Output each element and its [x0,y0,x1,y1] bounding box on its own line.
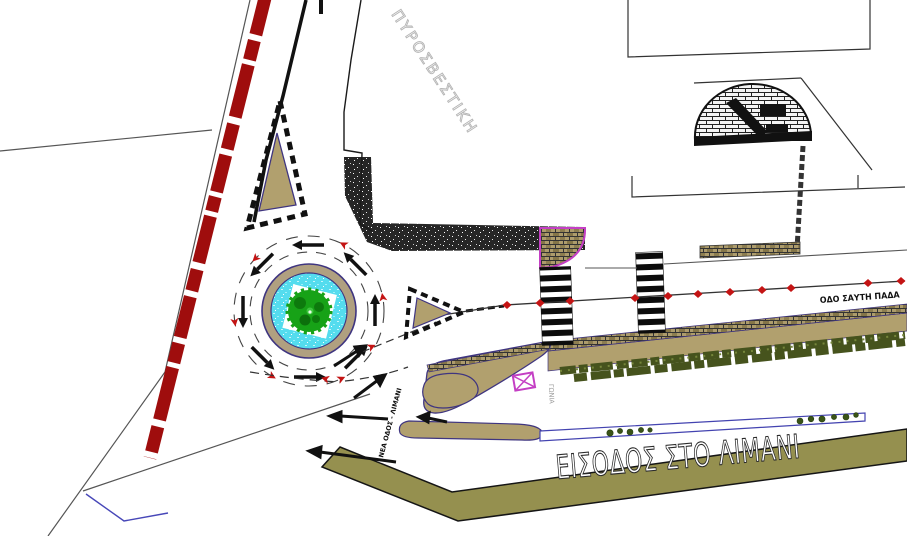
building-outline-2-bottom [632,176,905,197]
zebra-crosswalk-2 [636,252,666,334]
brick-arch [694,84,812,146]
port-road-sidewalk-band [548,304,907,378]
hatched-wall [700,146,803,258]
road-note-label: ΝΕΑ ΟΔΟΣ - ΛΙΜΑΝΙ [377,387,403,458]
median-island-long [399,421,542,440]
site-plan-drawing: ΕΙΣΟΔΟΣ ΣΤΟ ΛΙΜΑΝΙ ΠΥΡΟΣΒΕΣΤΙΚΗ ΟΔΟ ΣΑΥΤ… [0,0,907,536]
median-island-round [423,373,478,408]
blue-utility-line [86,494,168,521]
building-outline-1 [628,0,870,57]
zebra-crosswalk-1 [540,266,574,345]
brick-corner-magenta [540,228,585,268]
site-plan-canvas: ΕΙΣΟΔΟΣ ΣΤΟ ΛΙΜΑΝΙ ΠΥΡΟΣΒΕΣΤΙΚΗ ΟΔΟ ΣΑΥΤ… [0,0,907,536]
boundary-line-northwest [0,130,212,151]
fire-station-label: ΠΥΡΟΣΒΕΣΤΙΚΗ [388,6,482,137]
roundabout [230,236,387,386]
boundary-line-southwest [83,394,370,491]
envelope-icon [513,372,535,390]
building-outline-2-top [694,78,801,83]
corner-note-label: ΓΩΝΙΑ [547,384,556,405]
arrow-exit-3 [419,413,447,422]
street-name-label: ΟΔΟ ΣΑΥΤΗ ΠΑΔΑ [820,290,901,306]
building-diagonal-wall [801,78,872,170]
arrow-exit-1 [330,412,388,421]
boundary-line-west [48,0,250,536]
